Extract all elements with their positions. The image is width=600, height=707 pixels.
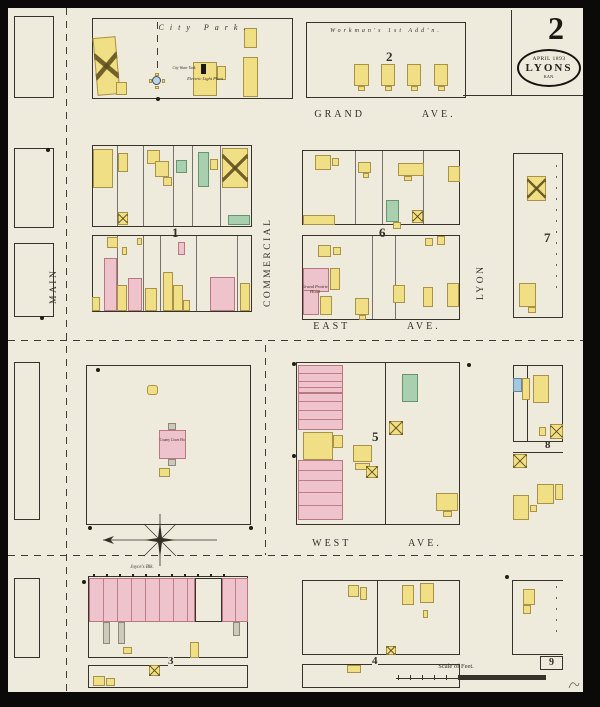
county-courthouse-building <box>159 430 186 459</box>
east-ave-label: EAST AVE. <box>302 322 452 332</box>
building <box>155 161 169 177</box>
lot-tick-column <box>556 165 557 295</box>
porch <box>359 315 366 320</box>
building <box>522 378 530 400</box>
building <box>93 149 113 188</box>
building <box>240 283 250 311</box>
stamp-state: KAN. <box>544 75 555 80</box>
block-line <box>512 654 563 655</box>
livery-barn <box>222 148 248 188</box>
city-park-label: City Park. <box>150 24 260 32</box>
block-4-number: 4 <box>372 656 378 667</box>
bandstand <box>147 385 158 395</box>
outbuilding <box>190 642 199 658</box>
dwelling <box>393 285 405 303</box>
stamp-city: LYONS <box>526 63 573 74</box>
dwelling <box>434 64 448 86</box>
building <box>210 277 235 311</box>
building <box>163 177 172 186</box>
porch <box>411 86 418 91</box>
porch <box>443 511 452 517</box>
block-line <box>385 362 386 525</box>
outbuilding <box>137 238 142 245</box>
dwelling <box>420 583 434 603</box>
outbuilding <box>437 236 445 245</box>
scale-bar-solid <box>458 675 546 680</box>
building <box>173 285 183 311</box>
partial-block <box>14 243 54 317</box>
barn <box>412 210 423 223</box>
chimney-row <box>93 574 233 577</box>
outbuilding <box>93 676 105 686</box>
partial-block <box>14 16 54 98</box>
building <box>228 215 250 225</box>
dwelling <box>519 283 536 307</box>
hydrant-dot <box>82 580 86 584</box>
map-margin <box>0 0 8 707</box>
handwritten-mark <box>568 680 580 690</box>
store-row <box>298 393 343 430</box>
east-ave-line <box>8 340 583 341</box>
publisher-stamp: APRIL 1893 LYONS KAN. <box>517 49 581 87</box>
outbuilding <box>122 247 127 255</box>
dwelling <box>315 155 331 170</box>
porch <box>528 307 536 313</box>
hydrant-dot <box>467 363 471 367</box>
porch <box>168 459 176 466</box>
barn <box>149 665 160 676</box>
commercial-street-label: COMMERCIAL <box>264 233 278 307</box>
building <box>116 82 127 95</box>
dwelling <box>348 585 359 597</box>
lot-tick-column <box>556 586 557 638</box>
building <box>104 258 117 311</box>
stone-building <box>513 378 522 392</box>
block-line <box>512 580 563 581</box>
rear-extension <box>233 622 240 636</box>
partial-block <box>14 362 40 520</box>
hydrant-dot <box>88 526 92 530</box>
building <box>176 160 187 173</box>
store-row <box>298 365 343 393</box>
building <box>332 158 339 166</box>
county-courthouse-label: County Court Ho. <box>155 438 190 442</box>
hydrant-dot <box>40 316 44 320</box>
building <box>355 298 369 315</box>
grand-prairie-hotel-label: Grand Prairie Hotel <box>297 284 333 295</box>
porch <box>168 423 176 430</box>
block-2-number: 2 <box>386 50 393 63</box>
partial-block <box>14 148 54 228</box>
compass-rose <box>100 512 220 568</box>
block-1-number: 1 <box>172 226 179 239</box>
sanborn-map-sheet: 2 APRIL 1893 LYONS KAN. City Park. City … <box>0 0 600 707</box>
limit-line <box>265 345 266 555</box>
rear-extension <box>103 622 110 644</box>
building <box>198 152 209 187</box>
water-tank-fountain <box>149 73 165 89</box>
building <box>118 153 128 172</box>
building <box>353 445 372 462</box>
building <box>163 272 173 311</box>
dwelling <box>402 585 414 605</box>
building <box>145 288 157 311</box>
hydrant-dot <box>96 368 100 372</box>
dwelling <box>360 587 367 600</box>
scale-label: Scale of Feet. <box>426 664 486 671</box>
hydrant-dot <box>46 148 50 152</box>
block-line <box>513 452 563 453</box>
west-ave-label: WEST AVE. <box>302 539 452 549</box>
dwelling <box>354 64 369 86</box>
barn <box>118 212 128 225</box>
block-5-number: 5 <box>372 430 379 443</box>
dwelling <box>436 493 458 511</box>
outbuilding <box>539 427 546 436</box>
outbuilding <box>530 505 537 512</box>
workmans-addition-label: Workman's 1st Add'n. <box>310 28 462 34</box>
panel-line <box>511 10 512 95</box>
building <box>318 245 331 257</box>
building <box>402 374 418 402</box>
hydrant-dot <box>249 526 253 530</box>
barn <box>527 176 546 201</box>
city-limit-line <box>66 8 67 692</box>
building <box>149 79 152 83</box>
water-tank-icon <box>152 76 161 85</box>
grand-ave-label: GRAND AVE. <box>300 110 470 120</box>
outbuilding <box>347 665 361 673</box>
outbuilding <box>159 468 170 477</box>
rear-extension <box>118 622 125 644</box>
main-street-label: MAIN <box>50 254 64 318</box>
partial-block <box>14 578 40 658</box>
block-9-number: 9 <box>540 658 563 668</box>
building <box>333 435 343 448</box>
building <box>155 73 159 76</box>
map-margin <box>0 0 600 8</box>
building <box>117 285 127 311</box>
well-dot <box>156 97 160 101</box>
joyces-block-label: Joyce's Blk. <box>118 565 166 571</box>
building <box>210 159 218 170</box>
block-8-number: 8 <box>545 440 551 451</box>
hydrant-dot <box>292 362 296 366</box>
hydrant-dot <box>292 454 296 458</box>
barn <box>366 466 378 478</box>
map-margin <box>583 0 600 707</box>
dwelling <box>448 166 460 182</box>
barn <box>513 454 527 468</box>
store-row <box>89 578 195 622</box>
building <box>303 215 335 225</box>
dwelling <box>358 162 371 173</box>
building <box>155 86 159 89</box>
dwelling <box>447 283 459 307</box>
porch <box>358 86 365 91</box>
building <box>386 200 399 222</box>
block-line <box>527 365 528 442</box>
map-margin <box>0 692 600 707</box>
electric-light-plant-label: Electric Light Plant <box>183 76 227 81</box>
dwelling <box>523 589 535 605</box>
block-line <box>512 580 513 655</box>
dwelling <box>423 287 433 307</box>
outbuilding <box>393 222 401 229</box>
building <box>128 278 142 311</box>
dwelling <box>537 484 554 504</box>
block-line <box>377 580 378 655</box>
barn <box>386 646 396 655</box>
porch <box>363 173 369 178</box>
outbuilding <box>123 647 132 654</box>
barn <box>389 421 403 435</box>
city-water-tank-label: City Water Tank <box>166 66 202 70</box>
outbuilding <box>425 238 433 246</box>
dwelling <box>533 375 549 403</box>
dwelling <box>381 64 395 86</box>
dwelling <box>398 163 424 176</box>
store-row <box>298 460 343 520</box>
porch <box>385 86 392 91</box>
dwelling <box>407 64 421 86</box>
barn <box>550 424 563 439</box>
lyon-street-label: LYON <box>477 251 491 313</box>
building <box>333 247 341 255</box>
outbuilding <box>106 678 115 686</box>
building <box>183 300 190 311</box>
building <box>162 79 165 83</box>
building <box>320 296 332 315</box>
outbuilding <box>107 237 118 248</box>
dwelling <box>555 484 563 500</box>
block-4-outline <box>302 580 460 655</box>
building <box>243 57 258 97</box>
outbuilding <box>178 242 185 255</box>
hydrant-dot <box>505 575 509 579</box>
block-3-number: 3 <box>168 656 174 667</box>
dwelling <box>523 605 531 614</box>
block-6-number: 6 <box>379 226 386 239</box>
outbuilding <box>423 610 428 618</box>
porch <box>404 176 412 181</box>
dwelling <box>513 495 529 520</box>
porch <box>438 86 445 91</box>
block-7-number: 7 <box>544 231 551 244</box>
west-ave-line <box>8 555 583 556</box>
sheet-number: 2 <box>548 12 564 44</box>
store-row <box>303 432 333 460</box>
panel-line <box>463 95 583 96</box>
building <box>92 297 100 311</box>
building <box>195 578 222 622</box>
